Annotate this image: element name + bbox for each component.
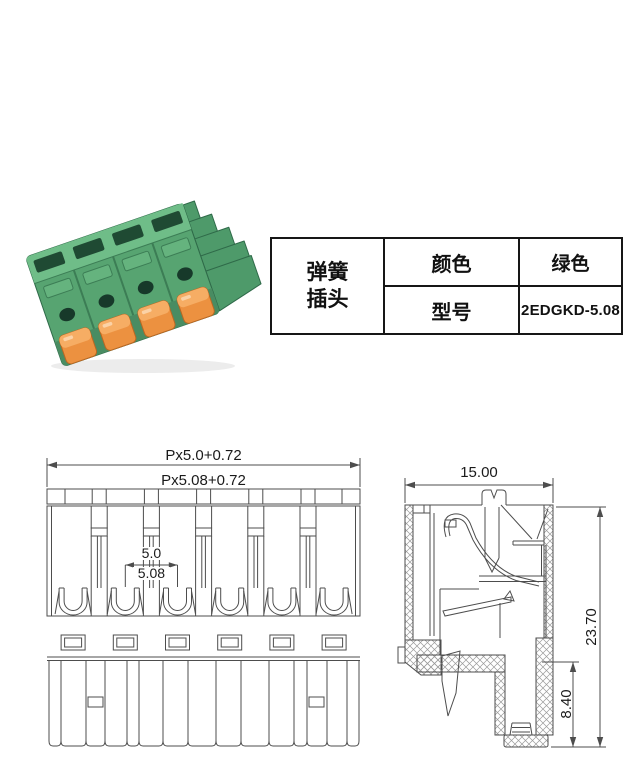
latch-notch-right bbox=[309, 697, 324, 707]
dim-label-width: 15.00 bbox=[460, 464, 498, 481]
dim-label-overall-p50: Px5.0+0.72 bbox=[165, 447, 241, 464]
side-view-drawing: 15.00 23.70 8.40 bbox=[396, 443, 640, 755]
product-photo bbox=[25, 190, 260, 380]
spec-label-color: 颜色 bbox=[383, 239, 518, 285]
lever-plate bbox=[443, 597, 511, 616]
section-wall-right bbox=[544, 505, 553, 638]
spec-label-model: 型号 bbox=[383, 285, 518, 333]
push-button-tab bbox=[482, 490, 506, 505]
dim-label-height: 23.70 bbox=[583, 608, 600, 646]
spec-table: 弹簧 插头 颜色 绿色 型号 2EDGKD-5.08 bbox=[270, 237, 623, 335]
spec-value-model: 2EDGKD-5.08 bbox=[518, 285, 621, 333]
spec-value-color: 绿色 bbox=[518, 239, 621, 285]
front-view-drawing: Px5.0+0.72 Px5.08+0.72 5.0 5.08 bbox=[38, 445, 368, 755]
dim-label-pitch-50: 5.0 bbox=[142, 545, 162, 561]
product-name-line1: 弹簧 bbox=[307, 259, 349, 286]
section-band bbox=[417, 655, 505, 672]
product-spec-sheet: 弹簧 插头 颜色 绿色 型号 2EDGKD-5.08 bbox=[0, 0, 640, 784]
latch-notch-left bbox=[88, 697, 103, 707]
section-foot-bottom bbox=[504, 735, 548, 747]
skirt-ribs bbox=[49, 661, 359, 746]
dim-label-pitch-508: 5.08 bbox=[138, 565, 165, 581]
dim-label-overall-p508: Px5.08+0.72 bbox=[161, 472, 246, 489]
dim-label-lower: 8.40 bbox=[558, 689, 575, 718]
section-wall-left bbox=[405, 505, 413, 640]
product-name-line2: 插头 bbox=[307, 286, 349, 313]
product-name: 弹簧 插头 bbox=[272, 239, 383, 333]
